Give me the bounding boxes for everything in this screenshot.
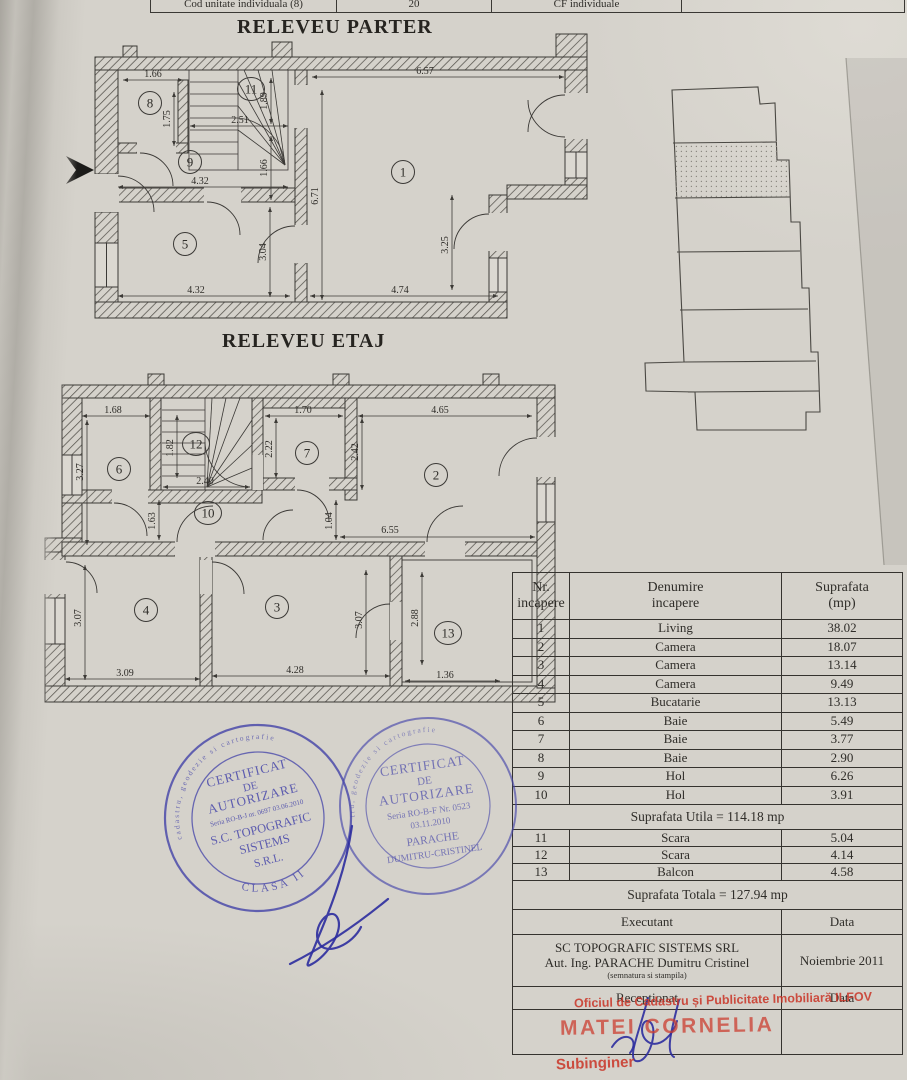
room-number: 12 (190, 437, 203, 452)
svg-text:S.C. TOPOGRAFIC: S.C. TOPOGRAFIC (209, 809, 312, 847)
etaj-dimensions: 1.68 1.82 1.70 4.65 3.27 2.22 2.42 2.40 … (65, 405, 535, 681)
room-number: 4 (143, 603, 150, 618)
dim-label: 1.66 (259, 159, 270, 177)
dim-label: 1.70 (294, 405, 312, 416)
dim-label: 4.65 (431, 405, 449, 416)
svg-text:Seria RO-B-J nr. 0697 03.06.20: Seria RO-B-J nr. 0697 03.06.2010 (209, 798, 304, 829)
dim-label: 2.88 (410, 609, 421, 627)
table-row: 8Baie2.90 (513, 749, 902, 768)
parter-stairs (189, 70, 288, 170)
suprafata-utila-row: Suprafata Utila = 114.18 mp (513, 804, 902, 829)
header-nr: Nr.incapere (513, 573, 569, 619)
table-row: 1Living38.02 (513, 619, 902, 638)
entrance-arrow (66, 156, 94, 184)
room-number: 6 (116, 462, 123, 477)
dim-label: 6.71 (310, 187, 321, 205)
suprafata-totala-row: Suprafata Totala = 127.94 mp (513, 880, 902, 909)
table-header-row: Nr.incapere Denumireincapere Suprafata(m… (513, 573, 902, 619)
room-number: 11 (245, 82, 258, 97)
cutoff-form-row: Cod unitate individuala (8) 20 CF indivi… (150, 0, 905, 13)
header-denumire: Denumireincapere (569, 573, 781, 619)
dim-label: 3.04 (258, 243, 269, 261)
svg-text:de cadastru, geodezie si carto: de cadastru, geodezie si cartografie (336, 723, 448, 819)
parter-plan (66, 34, 588, 318)
dim-label: 1.04 (324, 512, 335, 530)
authorization-stamp-company: CERTIFICAT DE AUTORIZARE Seria RO-B-J nr… (145, 705, 370, 930)
svg-text:S.R.L.: S.R.L. (253, 851, 285, 870)
form-cell-empty (681, 0, 904, 12)
room-number: 9 (187, 155, 194, 170)
parter-title: RELEVEU PARTER (237, 16, 433, 39)
paper-left-shadow (0, 0, 86, 1080)
table-row: 7Baie3.77 (513, 730, 902, 749)
dim-label: 1.68 (104, 405, 122, 416)
scanned-cadastral-document: Cod unitate individuala (8) 20 CF indivi… (0, 0, 907, 1080)
dim-label: 1.89 (259, 92, 270, 110)
dim-label: 3.09 (116, 668, 134, 679)
dim-label: 2.22 (264, 440, 275, 458)
paper-edge (846, 58, 907, 565)
room-number: 5 (182, 237, 189, 252)
dim-label: 1.36 (436, 670, 454, 681)
dim-label: 1.82 (165, 439, 176, 457)
table-row: 11Scara5.04 (513, 829, 902, 846)
room-number: 1 (400, 165, 407, 180)
svg-text:CERTIFICAT: CERTIFICAT (379, 753, 466, 780)
table-row: 6Baie5.49 (513, 712, 902, 731)
svg-text:SISTEMS: SISTEMS (238, 831, 291, 857)
header-suprafata: Suprafata(mp) (781, 573, 902, 619)
table-row: 9Hol6.26 (513, 767, 902, 786)
svg-text:CLASA II: CLASA II (238, 865, 310, 901)
paper-bottom-shadow (0, 920, 520, 1080)
dim-label: 1.63 (147, 512, 158, 530)
etaj-room-numbers: 6 12 7 2 10 4 3 13 (108, 433, 462, 645)
room-area-table: Nr.incapere Denumireincapere Suprafata(m… (512, 572, 903, 1055)
dim-label: 3.27 (75, 463, 86, 481)
svg-text:DE: DE (242, 779, 259, 794)
room-number: 7 (304, 446, 311, 461)
executant-detail-row: SC TOPOGRAFIC SISTEMS SRL Aut. Ing. PARA… (513, 934, 902, 986)
table-row: 3Camera13.14 (513, 656, 902, 675)
dim-label: 3.07 (73, 609, 84, 627)
dim-label: 4.32 (187, 285, 205, 296)
svg-text:Seria RO-B-F Nr. 0523: Seria RO-B-F Nr. 0523 (386, 800, 471, 822)
executant-date: Noiembrie 2011 (781, 935, 902, 986)
table-row: 12Scara4.14 (513, 846, 902, 863)
receptionat-row: Receptionat Data (513, 986, 902, 1009)
executant-engineer: Aut. Ing. PARACHE Dumitru Cristinel (545, 956, 750, 971)
svg-text:AUTORIZARE: AUTORIZARE (378, 781, 475, 809)
room-number: 3 (274, 600, 281, 615)
reception-signature-row (513, 1009, 902, 1054)
dim-label: 1.66 (144, 69, 162, 80)
executant-company: SC TOPOGRAFIC SISTEMS SRL (555, 941, 739, 956)
room-number: 13 (442, 626, 455, 641)
dim-label: 1.75 (162, 110, 173, 128)
table-row: 2Camera18.07 (513, 638, 902, 657)
registry-officer-title: Subinginer (556, 1054, 635, 1074)
dim-label: 2.40 (196, 476, 214, 487)
paper-highlight (587, 0, 907, 260)
form-cell-value: 20 (336, 0, 491, 12)
executant-header-row: Executant Data (513, 909, 902, 934)
dim-label: 4.74 (391, 285, 409, 296)
dim-label: 3.07 (354, 611, 365, 629)
table-row: 13Balcon4.58 (513, 863, 902, 880)
dim-label: 3.25 (440, 236, 451, 254)
svg-text:DE: DE (416, 774, 432, 788)
table-row: 4Camera9.49 (513, 675, 902, 694)
svg-text:Persoana juridica autorizata d: Persoana juridica autorizata de cadastru… (154, 725, 296, 841)
svg-text:CERTIFICAT: CERTIFICAT (205, 756, 289, 791)
etaj-title: RELEVEU ETAJ (222, 330, 385, 353)
room-number: 2 (433, 468, 440, 483)
site-sketch (645, 87, 820, 430)
authorization-stamp-person: CERTIFICAT DE AUTORIZARE Seria RO-B-F Nr… (329, 707, 528, 906)
svg-text:AUTORIZARE: AUTORIZARE (206, 780, 300, 817)
form-cell-label: Cod unitate individuala (8) (151, 0, 336, 12)
form-cell-cf: CF individuale (491, 0, 681, 12)
table-row: 5Bucatarie13.13 (513, 693, 902, 712)
executant-note: (semnatura si stampila) (607, 971, 686, 981)
svg-text:03.11.2010: 03.11.2010 (410, 815, 452, 831)
dim-label: 6.55 (381, 525, 399, 536)
dim-label: 4.28 (286, 665, 304, 676)
table-row: 10Hol3.91 (513, 786, 902, 805)
etaj-plan (44, 374, 556, 702)
svg-text:PARACHE: PARACHE (406, 830, 460, 849)
parter-room-numbers: 8 11 9 1 5 (139, 78, 415, 256)
etaj-stairs (161, 398, 252, 490)
site-sketch-highlighted-unit (673, 141, 790, 198)
dim-label: 6.57 (416, 66, 434, 77)
svg-text:DUMITRU-CRISTINEL: DUMITRU-CRISTINEL (387, 843, 484, 866)
dim-label: 2.51 (231, 115, 249, 126)
parter-dimensions: 1.66 1.75 2.51 1.89 6.57 1.66 6.71 4.32 … (118, 66, 564, 300)
room-number: 8 (147, 96, 154, 111)
room-number: 10 (202, 506, 215, 521)
dim-label: 4.32 (191, 176, 209, 187)
dim-label: 2.42 (350, 443, 361, 461)
